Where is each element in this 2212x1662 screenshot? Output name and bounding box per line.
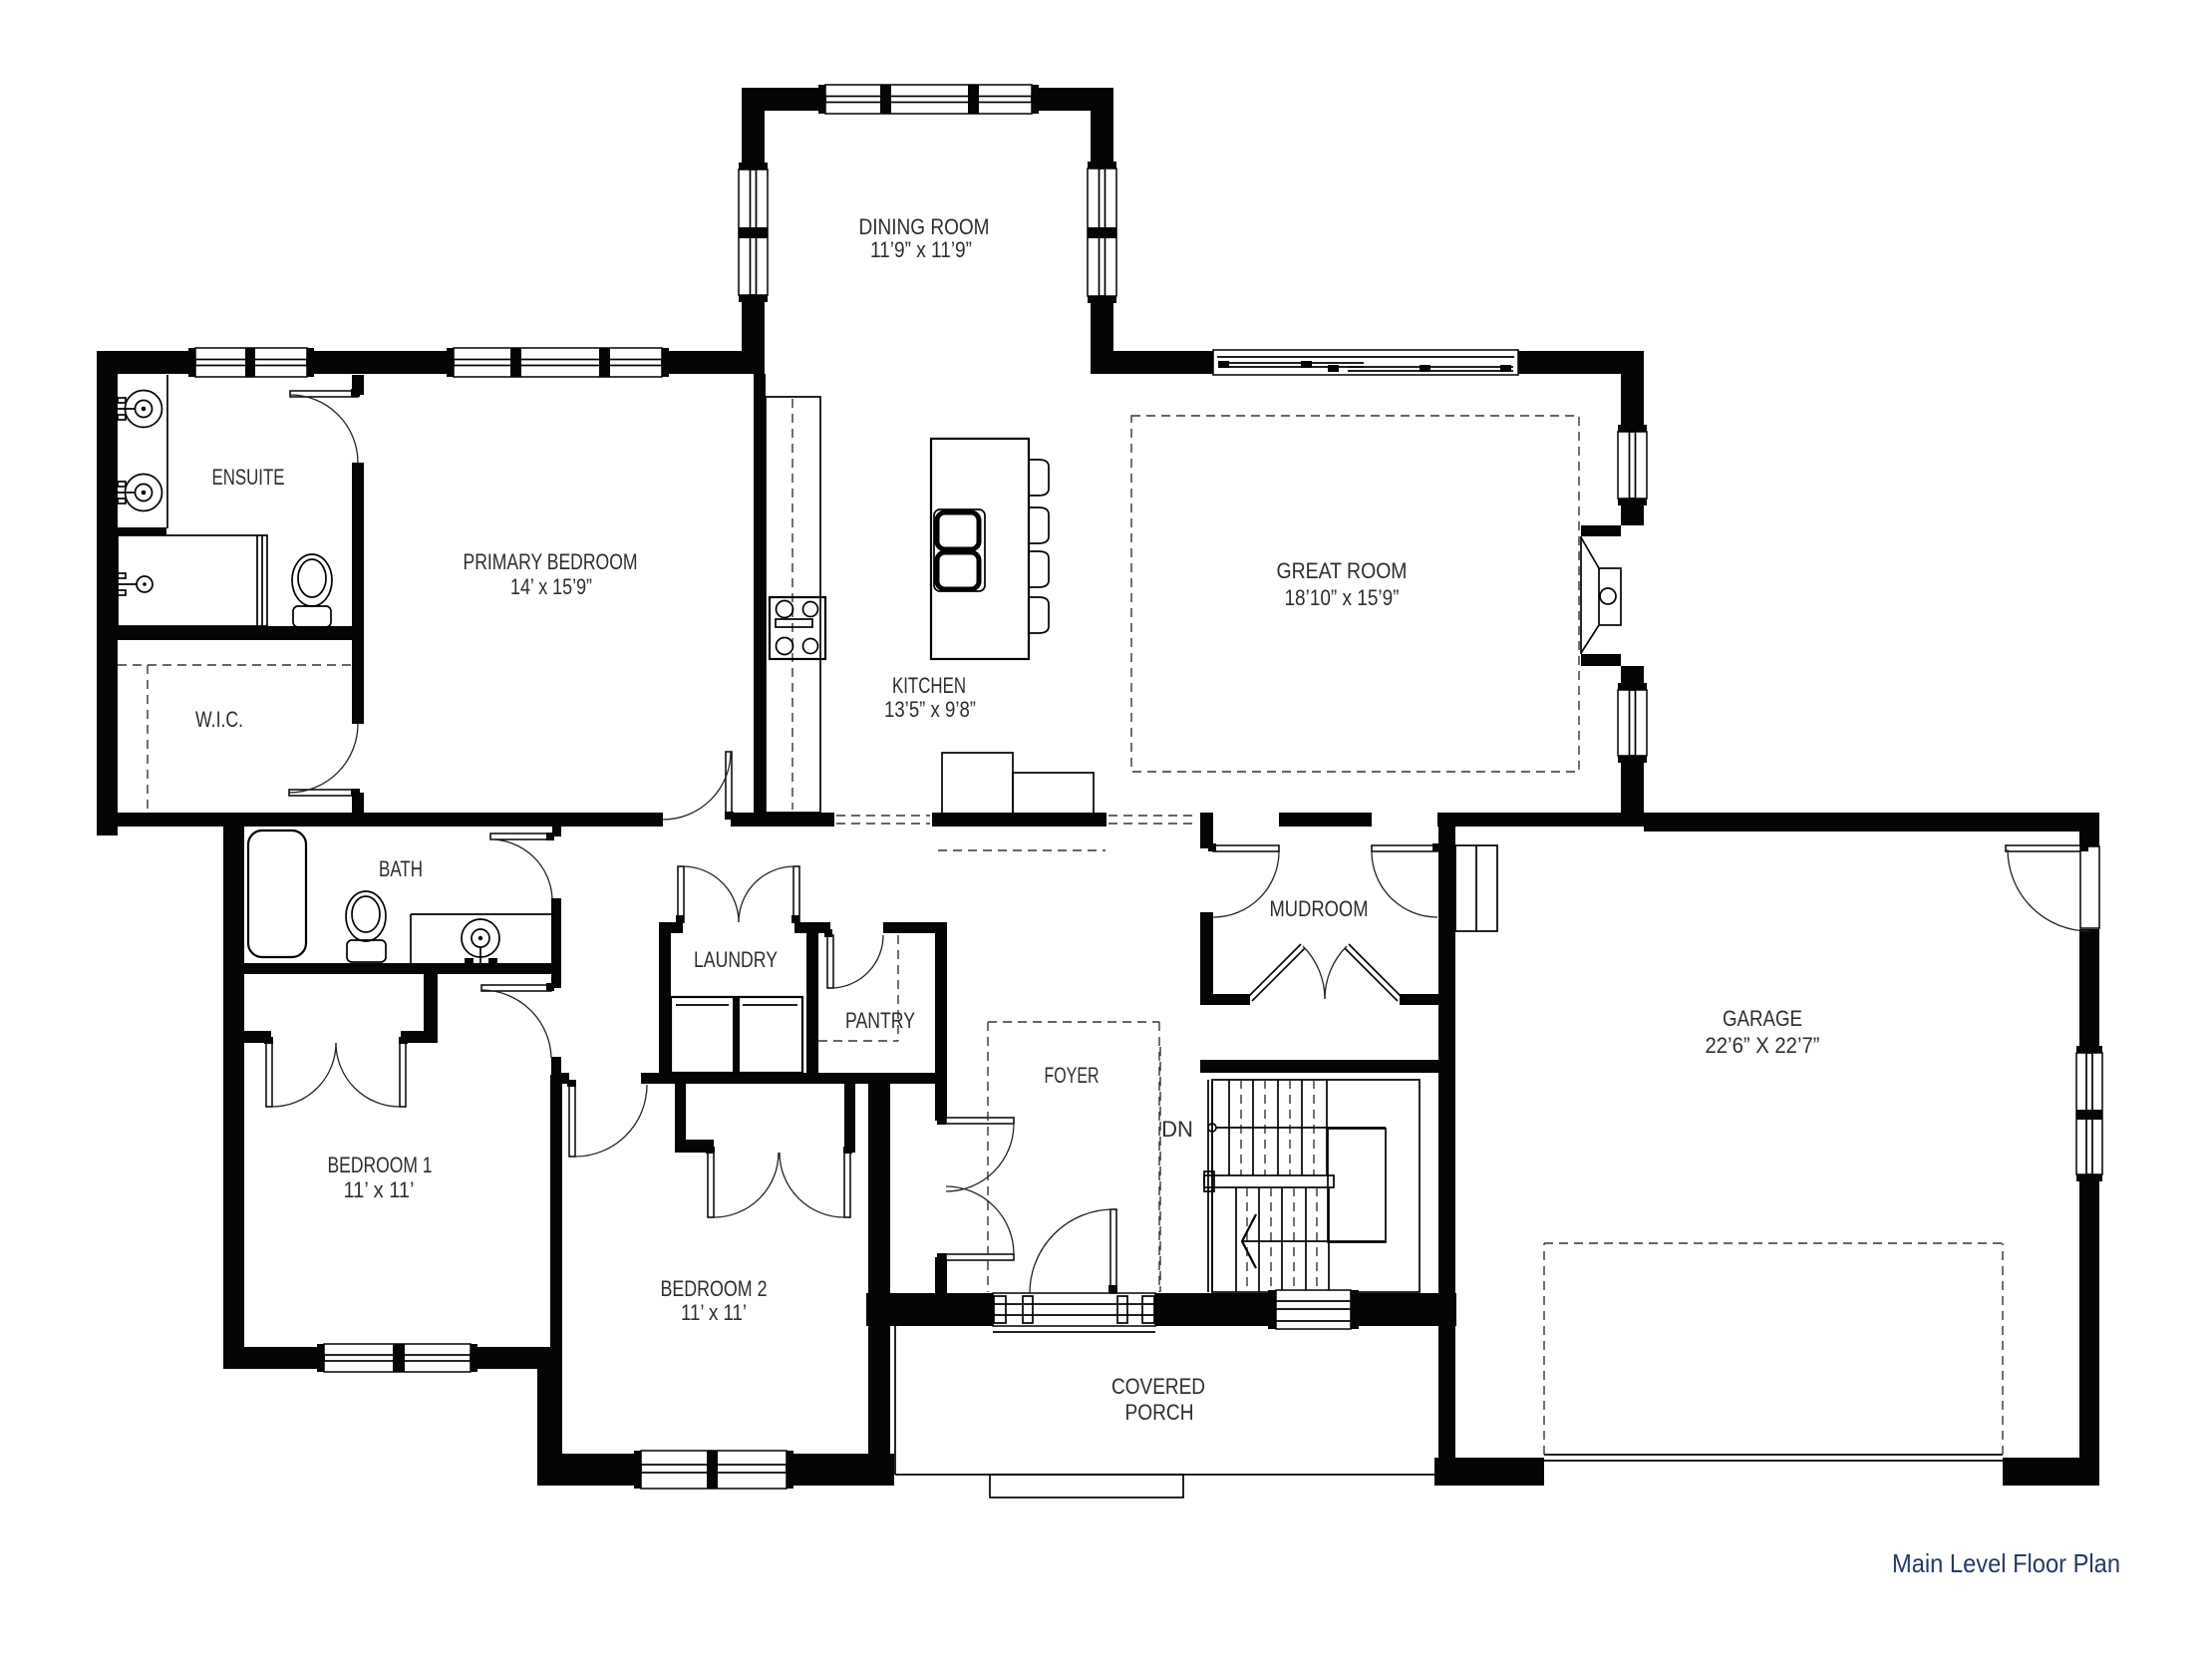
svg-text:Main Level Floor Plan: Main Level Floor Plan [1892, 1548, 2120, 1578]
svg-text:DINING ROOM: DINING ROOM [859, 214, 990, 239]
svg-text:LAUNDRY: LAUNDRY [694, 947, 778, 972]
svg-text:11’9” x 11’9”: 11’9” x 11’9” [870, 237, 972, 262]
svg-text:BEDROOM 2: BEDROOM 2 [661, 1276, 768, 1301]
svg-text:11’ x 11’: 11’ x 11’ [344, 1177, 415, 1202]
svg-text:W.I.C.: W.I.C. [195, 707, 243, 732]
svg-text:GREAT ROOM: GREAT ROOM [1277, 558, 1408, 583]
svg-text:11’ x 11’: 11’ x 11’ [681, 1300, 747, 1325]
svg-text:22’6” X 22’7”: 22’6” X 22’7” [1706, 1033, 1820, 1058]
svg-text:18’10” x 15’9”: 18’10” x 15’9” [1285, 585, 1400, 610]
svg-text:MUDROOM: MUDROOM [1270, 896, 1369, 921]
svg-text:PORCH: PORCH [1125, 1400, 1194, 1425]
svg-text:BATH: BATH [379, 856, 423, 881]
svg-text:COVERED: COVERED [1111, 1374, 1205, 1399]
svg-text:PANTRY: PANTRY [845, 1008, 915, 1033]
svg-text:GARAGE: GARAGE [1723, 1006, 1802, 1031]
svg-text:DN: DN [1161, 1117, 1193, 1142]
svg-text:BEDROOM 1: BEDROOM 1 [328, 1153, 433, 1177]
svg-text:13’5” x 9’8”: 13’5” x 9’8” [884, 697, 976, 722]
svg-text:FOYER: FOYER [1045, 1063, 1100, 1088]
svg-text:PRIMARY BEDROOM: PRIMARY BEDROOM [464, 549, 638, 574]
svg-text:14’ x 15’9”: 14’ x 15’9” [510, 574, 592, 599]
svg-text:ENSUITE: ENSUITE [212, 465, 285, 490]
svg-text:KITCHEN: KITCHEN [892, 673, 966, 698]
